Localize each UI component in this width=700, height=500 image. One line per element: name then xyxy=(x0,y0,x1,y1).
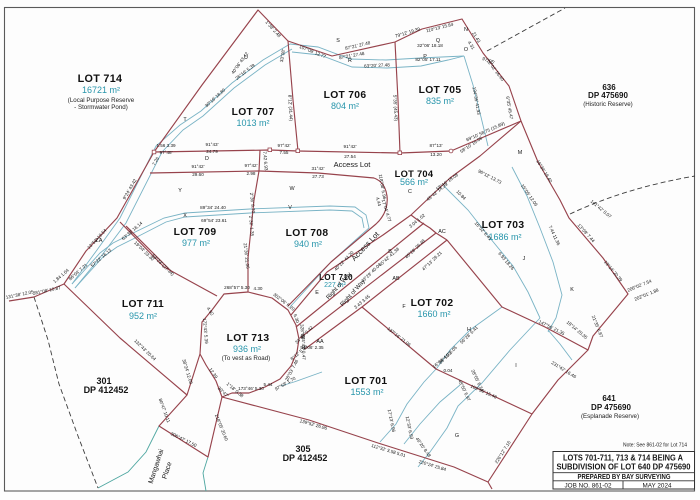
svg-text:SUBDIVISION OF LOT 640 DP 4756: SUBDIVISION OF LOT 640 DP 475690 xyxy=(557,462,691,472)
svg-text:13.20: 13.20 xyxy=(430,152,442,157)
svg-text:JOB NO. 861-02: JOB NO. 861-02 xyxy=(565,483,612,490)
svg-text:29.60: 29.60 xyxy=(192,172,204,177)
svg-text:(Esplanade Reserve): (Esplanade Reserve) xyxy=(581,413,639,420)
svg-text:LOT 711: LOT 711 xyxy=(122,299,164,310)
svg-text:Note: See 861-02 for Lot 714: Note: See 861-02 for Lot 714 xyxy=(623,443,687,449)
svg-text:K: K xyxy=(570,287,574,293)
svg-text:I: I xyxy=(515,363,517,369)
svg-text:27.54: 27.54 xyxy=(344,154,356,159)
svg-text:(Local Purpose Reserve: (Local Purpose Reserve xyxy=(68,97,135,104)
svg-text:LOT 708: LOT 708 xyxy=(286,228,329,239)
svg-text:97°42': 97°42' xyxy=(245,163,258,168)
svg-text:LOT 701: LOT 701 xyxy=(345,376,388,387)
svg-text:X: X xyxy=(183,213,187,219)
svg-text:DP 412452: DP 412452 xyxy=(84,385,129,395)
svg-text:LOT 714: LOT 714 xyxy=(78,73,123,85)
svg-text:91°42': 91°42' xyxy=(344,144,357,149)
svg-text:E: E xyxy=(315,290,319,296)
svg-text:Access Lot: Access Lot xyxy=(334,160,372,169)
svg-text:69°54' 23.61: 69°54' 23.61 xyxy=(201,218,227,223)
svg-text:31°42': 31°42' xyxy=(312,166,325,171)
svg-text:1013 m²: 1013 m² xyxy=(236,118,269,128)
svg-text:G: G xyxy=(455,433,459,439)
svg-text:- Stormwater Pond): - Stormwater Pond) xyxy=(74,104,128,111)
svg-text:977 m²: 977 m² xyxy=(182,238,210,248)
svg-text:1660 m²: 1660 m² xyxy=(417,309,450,319)
svg-text:1553 m²: 1553 m² xyxy=(350,387,383,397)
svg-text:91°42': 91°42' xyxy=(192,164,205,169)
svg-text:DP 412452: DP 412452 xyxy=(283,453,328,463)
svg-text:4.30: 4.30 xyxy=(254,286,263,291)
svg-text:LOT 705: LOT 705 xyxy=(419,85,462,96)
svg-text:1686 m²: 1686 m² xyxy=(488,232,521,242)
svg-text:24.79: 24.79 xyxy=(206,149,218,154)
svg-text:641: 641 xyxy=(602,394,616,403)
svg-text:(To vest as Road): (To vest as Road) xyxy=(222,355,271,362)
svg-text:MAY 2024: MAY 2024 xyxy=(643,483,672,490)
svg-text:AB: AB xyxy=(392,276,400,282)
svg-text:7.55: 7.55 xyxy=(280,150,289,155)
svg-text:DP 475690: DP 475690 xyxy=(591,403,631,412)
svg-text:0.04: 0.04 xyxy=(444,368,453,373)
svg-text:LOT 703: LOT 703 xyxy=(482,220,525,231)
svg-text:940 m²: 940 m² xyxy=(294,239,322,249)
svg-text:16721 m²: 16721 m² xyxy=(82,85,120,95)
svg-text:804 m²: 804 m² xyxy=(331,101,359,111)
svg-text:566 m²: 566 m² xyxy=(400,177,428,187)
svg-text:(Historic Reserve): (Historic Reserve) xyxy=(583,101,633,108)
svg-text:89°34' 24.40: 89°34' 24.40 xyxy=(200,205,226,210)
svg-text:C: C xyxy=(408,189,412,195)
svg-text:D: D xyxy=(205,156,209,162)
svg-text:835 m²: 835 m² xyxy=(426,96,454,106)
svg-text:27.73: 27.73 xyxy=(312,174,324,179)
svg-text:S: S xyxy=(336,38,340,44)
svg-text:M: M xyxy=(518,150,523,156)
svg-text:5.44: 5.44 xyxy=(264,382,273,387)
svg-text:LOT 702: LOT 702 xyxy=(411,298,454,309)
svg-text:32°06' 18.18: 32°06' 18.18 xyxy=(417,43,443,48)
svg-text:91°43': 91°43' xyxy=(206,142,219,147)
svg-text:87°13': 87°13' xyxy=(430,143,443,148)
svg-text:J: J xyxy=(523,256,526,262)
svg-text:173°46' 5.30: 173°46' 5.30 xyxy=(238,386,264,391)
svg-text:1.56 3.39: 1.56 3.39 xyxy=(156,143,176,148)
svg-text:V: V xyxy=(288,205,292,211)
svg-text:268°57' 5.30: 268°57' 5.30 xyxy=(224,285,250,290)
svg-text:R: R xyxy=(348,58,352,64)
svg-text:N: N xyxy=(464,27,468,33)
svg-text:952 m²: 952 m² xyxy=(129,311,157,321)
svg-text:82°05' 17.11: 82°05' 17.11 xyxy=(415,57,441,62)
svg-text:O: O xyxy=(464,47,468,53)
svg-text:936 m²: 936 m² xyxy=(233,344,261,354)
svg-text:97°42': 97°42' xyxy=(278,143,291,148)
svg-text:LOT 713: LOT 713 xyxy=(227,333,270,344)
svg-text:Y: Y xyxy=(178,188,182,194)
svg-text:PREPARED BY BAY SURVEYING: PREPARED BY BAY SURVEYING xyxy=(578,474,671,481)
svg-text:97°48': 97°48' xyxy=(160,150,173,155)
svg-text:LOT 709: LOT 709 xyxy=(174,227,217,238)
svg-text:LOT 707: LOT 707 xyxy=(232,107,275,118)
svg-text:LOT 706: LOT 706 xyxy=(324,90,367,101)
svg-text:2.98: 2.98 xyxy=(247,171,256,176)
svg-text:DP 475690: DP 475690 xyxy=(588,91,628,100)
svg-text:AC: AC xyxy=(438,229,446,235)
